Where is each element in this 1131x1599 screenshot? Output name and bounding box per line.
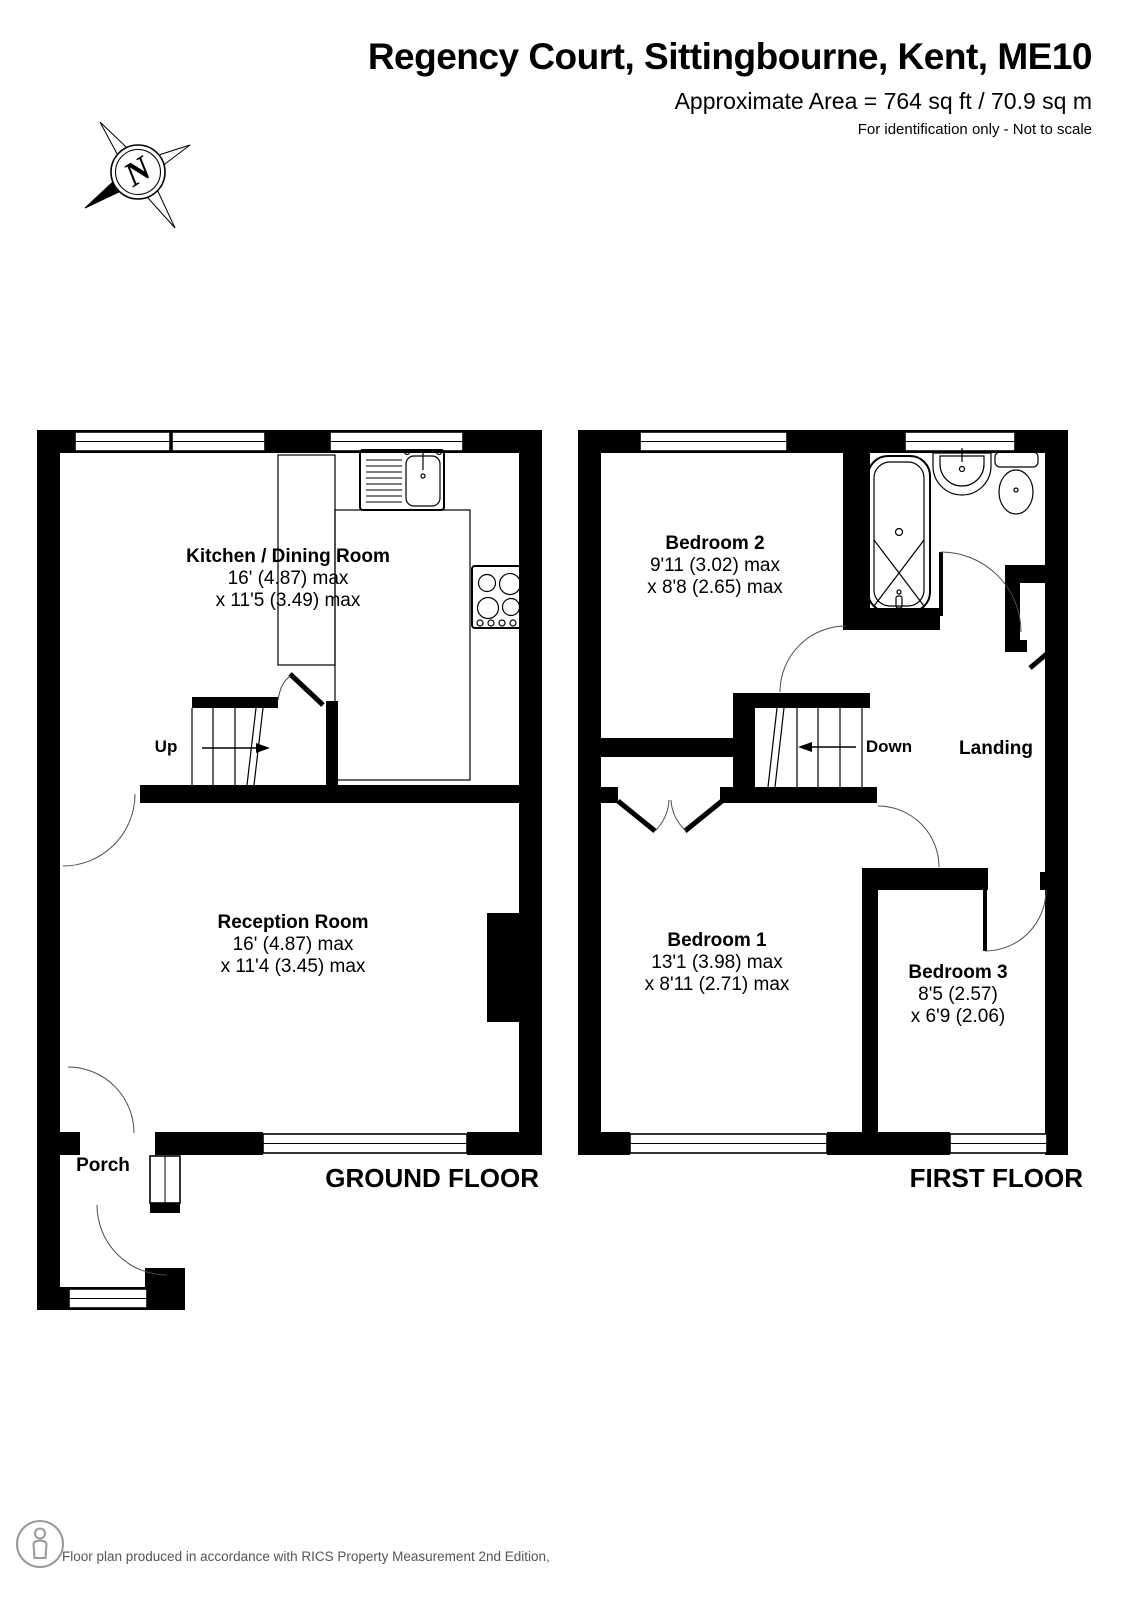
room-name: Bedroom 3 (908, 962, 1007, 984)
room-dim: 13'1 (3.98) max (645, 952, 790, 974)
floorplan-drawing (0, 0, 1131, 1599)
footer-line1: Floor plan produced in accordance with R… (62, 1548, 676, 1565)
room-dim: x 8'11 (2.71) max (645, 974, 790, 996)
room-dim: x 8'8 (2.65) max (647, 577, 783, 599)
bathtub (868, 456, 930, 612)
bedroom2-label: Bedroom 2 9'11 (3.02) max x 8'8 (2.65) m… (647, 533, 783, 599)
room-dim: 16' (4.87) max (218, 934, 369, 956)
reception-label: Reception Room 16' (4.87) max x 11'4 (3.… (218, 912, 369, 978)
bedroom3-label: Bedroom 3 8'5 (2.57) x 6'9 (2.06) (908, 962, 1007, 1028)
stairs-down (768, 708, 862, 787)
landing-label: Landing (959, 738, 1033, 760)
washbasin (933, 448, 991, 495)
person-icon (14, 1518, 66, 1570)
room-dim: x 11'4 (3.45) max (218, 956, 369, 978)
floorplan-page: Regency Court, Sittingbourne, Kent, ME10… (0, 0, 1131, 1599)
toilet (995, 452, 1038, 514)
footer-text: Floor plan produced in accordance with R… (62, 1514, 676, 1599)
porch-label: Porch (76, 1155, 130, 1177)
room-dim: 8'5 (2.57) (908, 984, 1007, 1006)
hob (472, 566, 524, 628)
room-name: Kitchen / Dining Room (186, 546, 390, 568)
room-name: Bedroom 1 (645, 930, 790, 952)
stairs-down-label: Down (866, 737, 912, 757)
first-floor-caption: FIRST FLOOR (910, 1163, 1083, 1194)
room-dim: x 11'5 (3.49) max (186, 590, 390, 612)
room-name: Bedroom 2 (647, 533, 783, 555)
ground-floor-caption: GROUND FLOOR (325, 1163, 539, 1194)
chimney-breast (487, 913, 519, 1022)
room-dim: 9'11 (3.02) max (647, 555, 783, 577)
kitchen-sink (360, 450, 444, 511)
room-name: Reception Room (218, 912, 369, 934)
stairs-up (192, 708, 270, 785)
room-dim: x 6'9 (2.06) (908, 1006, 1007, 1028)
room-dim: 16' (4.87) max (186, 568, 390, 590)
bedroom1-label: Bedroom 1 13'1 (3.98) max x 8'11 (2.71) … (645, 930, 790, 996)
stairs-up-label: Up (155, 737, 178, 757)
kitchen-label: Kitchen / Dining Room 16' (4.87) max x 1… (186, 546, 390, 612)
